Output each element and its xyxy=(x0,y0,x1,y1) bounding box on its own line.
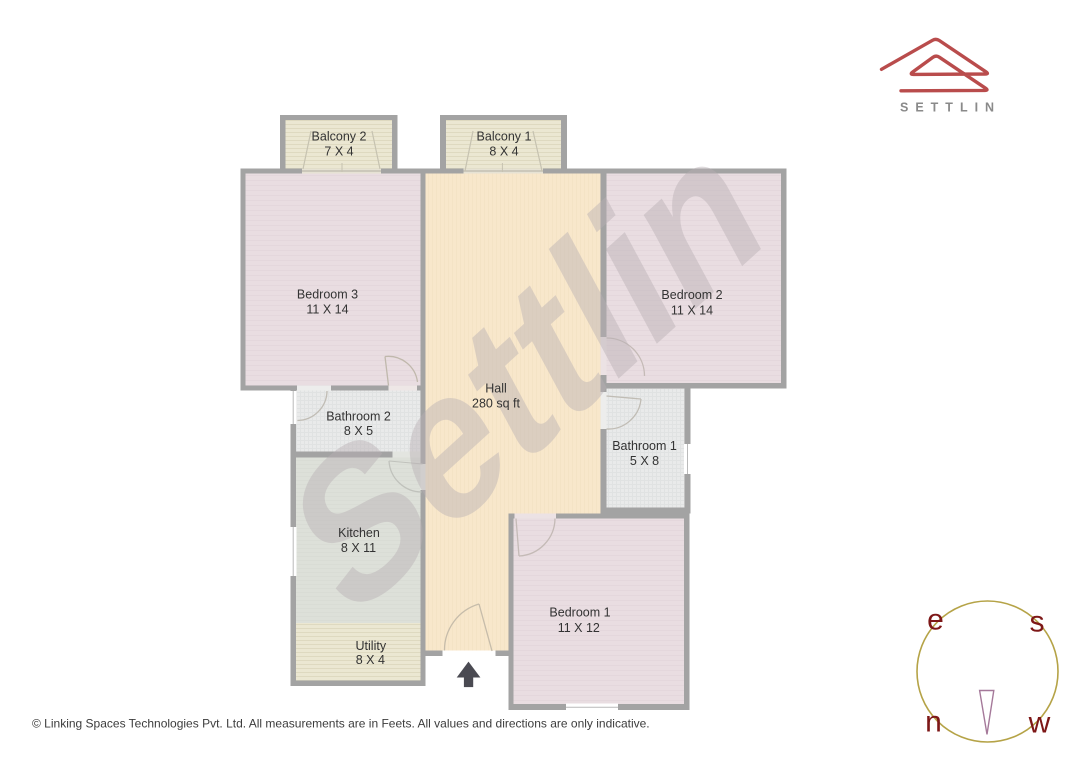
svg-text:Kitchen: Kitchen xyxy=(338,526,380,540)
svg-text:© Linking Spaces Technologies: © Linking Spaces Technologies Pvt. Ltd. … xyxy=(32,717,650,731)
svg-text:7 X 4: 7 X 4 xyxy=(324,145,353,159)
svg-text:w: w xyxy=(1028,707,1051,740)
svg-text:8 X 4: 8 X 4 xyxy=(356,653,385,667)
svg-text:Bedroom 1: Bedroom 1 xyxy=(549,606,610,620)
svg-text:8 X 5: 8 X 5 xyxy=(344,424,373,438)
svg-text:Bathroom 1: Bathroom 1 xyxy=(612,439,677,453)
svg-text:SETTLIN: SETTLIN xyxy=(900,101,1001,115)
svg-text:8 X 4: 8 X 4 xyxy=(489,145,518,159)
svg-text:Utility: Utility xyxy=(356,639,387,653)
svg-text:s: s xyxy=(1030,606,1045,639)
svg-text:8 X 11: 8 X 11 xyxy=(341,541,376,555)
svg-text:Bedroom 2: Bedroom 2 xyxy=(661,288,722,302)
svg-text:Hall: Hall xyxy=(485,382,507,396)
svg-text:Balcony 2: Balcony 2 xyxy=(312,130,367,144)
svg-text:Balcony 1: Balcony 1 xyxy=(477,130,532,144)
svg-text:e: e xyxy=(927,604,944,637)
svg-text:Bathroom 2: Bathroom 2 xyxy=(326,410,391,424)
svg-text:11 X 14: 11 X 14 xyxy=(306,303,348,317)
svg-text:11 X 12: 11 X 12 xyxy=(558,621,600,635)
svg-text:11 X 14: 11 X 14 xyxy=(671,304,713,318)
svg-text:280 sq ft: 280 sq ft xyxy=(472,397,520,411)
svg-text:Bedroom 3: Bedroom 3 xyxy=(297,288,358,302)
svg-text:5 X 8: 5 X 8 xyxy=(630,454,659,468)
svg-text:n: n xyxy=(925,706,942,739)
